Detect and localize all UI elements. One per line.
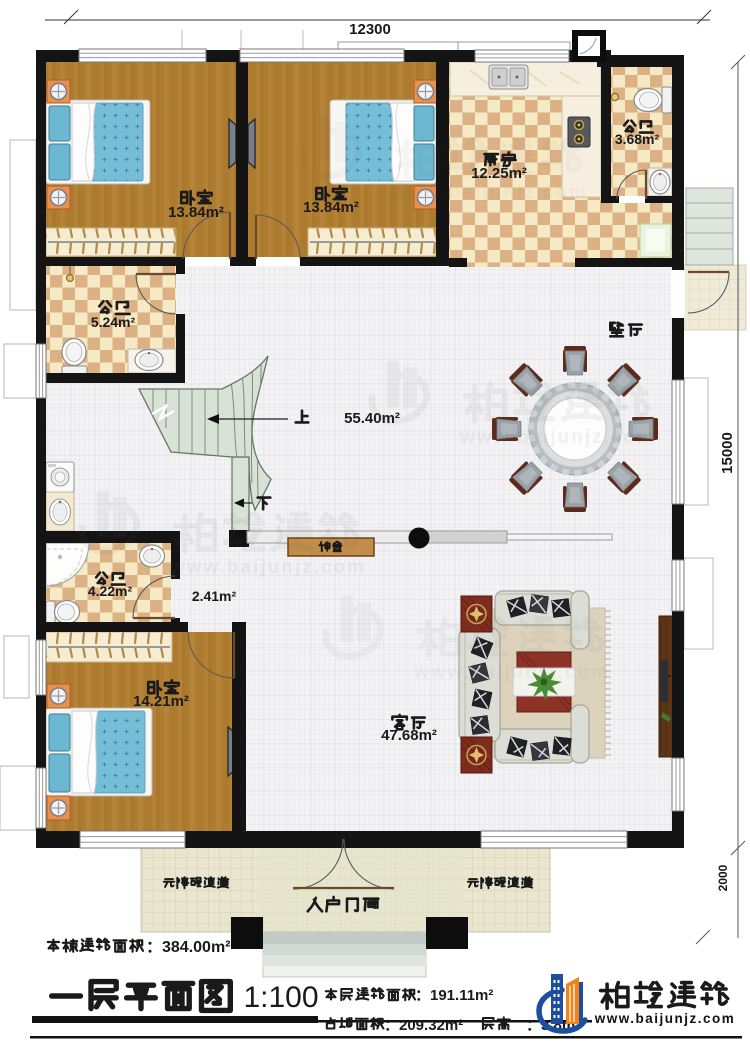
- svg-text:3.68m²: 3.68m²: [615, 131, 660, 147]
- svg-text:：191.11m²: ：191.11m²: [415, 987, 493, 1004]
- svg-text:12300: 12300: [349, 21, 391, 38]
- svg-text:www.baijunjz.com: www.baijunjz.com: [169, 557, 366, 578]
- svg-text:2.41m²: 2.41m²: [192, 588, 237, 604]
- svg-text:1:100: 1:100: [243, 981, 318, 1014]
- svg-text:13.84m²: 13.84m²: [168, 204, 224, 221]
- svg-text:www.baijunjz.com: www.baijunjz.com: [594, 1011, 736, 1026]
- svg-text:47.68m²: 47.68m²: [381, 727, 437, 744]
- svg-text:2000: 2000: [716, 864, 730, 891]
- svg-text:5.24m²: 5.24m²: [91, 314, 136, 330]
- svg-text:：384.00m²: ：384.00m²: [146, 939, 231, 956]
- svg-text:15000: 15000: [719, 432, 736, 474]
- svg-text:www.baijunjz.com: www.baijunjz.com: [413, 662, 610, 683]
- svg-text:14.21m²: 14.21m²: [133, 693, 189, 710]
- svg-text:www.baijunjz.com: www.baijunjz.com: [391, 182, 588, 203]
- svg-text:：209.32m²: ：209.32m²: [384, 1017, 463, 1034]
- svg-text:13.84m²: 13.84m²: [303, 199, 359, 216]
- svg-text:www.baijunjz.com: www.baijunjz.com: [459, 427, 656, 448]
- svg-text:4.22m²: 4.22m²: [88, 583, 133, 599]
